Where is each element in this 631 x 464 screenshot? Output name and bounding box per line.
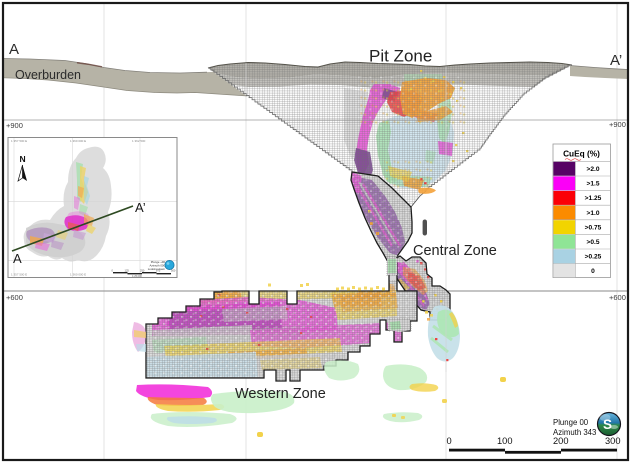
svg-text:>0.25: >0.25 [585, 254, 602, 261]
svg-text:250: 250 [140, 269, 145, 273]
svg-text:100: 100 [497, 436, 513, 446]
svg-text:A: A [13, 251, 22, 266]
svg-text:1 360 000 E: 1 360 000 E [70, 273, 86, 277]
svg-text:+900: +900 [609, 120, 626, 129]
svg-text:1:25,000: 1:25,000 [132, 275, 142, 278]
svg-text:Plunge 00: Plunge 00 [553, 418, 589, 427]
svg-text:0: 0 [591, 268, 595, 275]
svg-text:>2.0: >2.0 [586, 166, 599, 173]
svg-text:>1.25: >1.25 [585, 195, 602, 202]
svg-text:Looking down: Looking down [148, 267, 166, 271]
svg-text:1 357 500 E: 1 357 500 E [11, 273, 27, 277]
svg-text:+900: +900 [6, 121, 23, 130]
svg-text:0: 0 [447, 436, 452, 446]
svg-text:Western Zone: Western Zone [235, 386, 326, 402]
svg-text:CuEq (%): CuEq (%) [563, 149, 600, 159]
svg-text:A’: A’ [135, 200, 146, 215]
svg-text:N: N [20, 154, 26, 164]
svg-text:>0.75: >0.75 [585, 224, 602, 231]
svg-text:125: 125 [125, 269, 130, 273]
svg-text:Overburden: Overburden [15, 68, 81, 82]
svg-text:+600: +600 [6, 293, 23, 302]
svg-text:200: 200 [553, 436, 569, 446]
svg-text:+600: +600 [609, 293, 626, 302]
svg-text:1 362 500: 1 362 500 [132, 139, 146, 143]
svg-text:>0.5: >0.5 [586, 239, 599, 246]
svg-text:A: A [9, 41, 19, 58]
svg-text:Pit Zone: Pit Zone [369, 47, 432, 66]
svg-text:300: 300 [605, 436, 621, 446]
svg-text:>1.5: >1.5 [586, 181, 599, 188]
svg-text:1 357 500 E: 1 357 500 E [11, 139, 27, 143]
svg-text:Central Zone: Central Zone [413, 243, 497, 259]
svg-text:>1.0: >1.0 [586, 210, 599, 217]
svg-text:S: S [603, 417, 612, 432]
svg-text:1 360 000 E: 1 360 000 E [70, 139, 86, 143]
svg-text:Azimuth 343: Azimuth 343 [553, 428, 596, 437]
svg-text:A’: A’ [610, 52, 622, 69]
